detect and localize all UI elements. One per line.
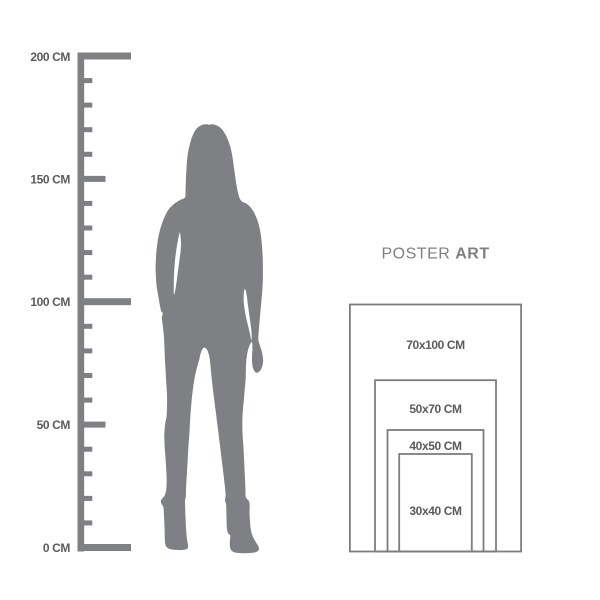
svg-text:0 CM: 0 CM [43, 541, 70, 555]
svg-text:70x100 CM: 70x100 CM [406, 338, 465, 352]
svg-text:30x40 CM: 30x40 CM [409, 504, 462, 518]
svg-text:50x70 CM: 50x70 CM [409, 402, 462, 416]
svg-text:100 CM: 100 CM [30, 295, 70, 309]
svg-text:50 CM: 50 CM [37, 418, 71, 432]
svg-text:150 CM: 150 CM [30, 172, 70, 186]
svg-text:200 CM: 200 CM [30, 50, 70, 64]
svg-text:POSTER ART: POSTER ART [382, 246, 490, 263]
svg-text:40x50 CM: 40x50 CM [409, 439, 462, 453]
